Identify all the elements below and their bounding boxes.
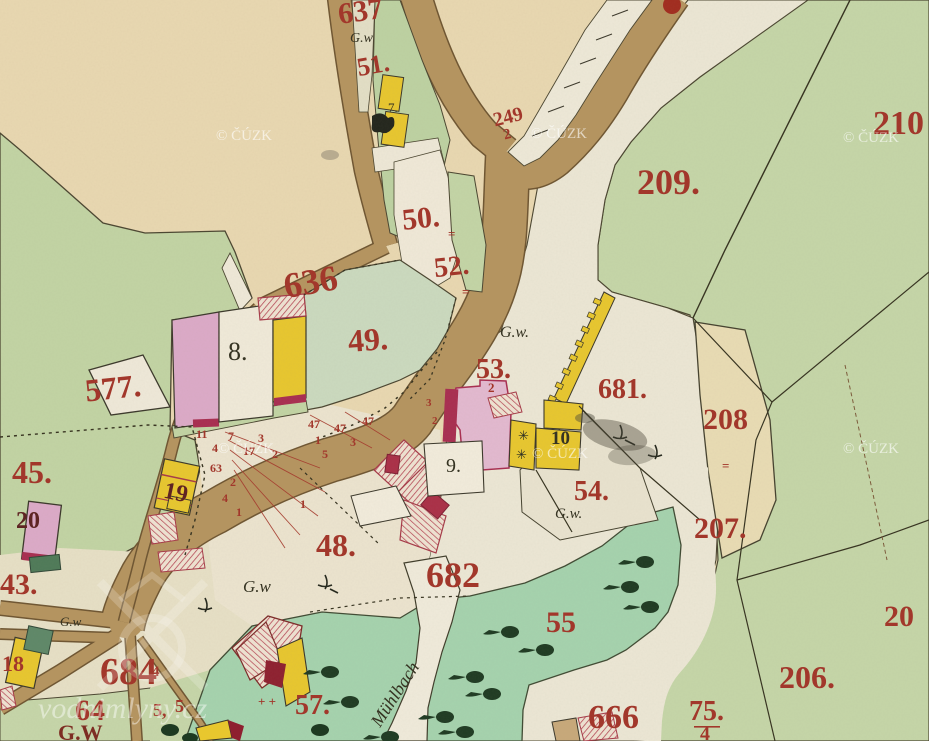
svg-text:2: 2: [488, 380, 495, 395]
svg-text:=: =: [462, 284, 469, 299]
svg-text:✳: ✳: [518, 428, 529, 443]
svg-text:© ČÚZK: © ČÚZK: [843, 129, 899, 146]
svg-text:© ČÚZK: © ČÚZK: [532, 445, 588, 462]
svg-text:© ČÚZK: © ČÚZK: [531, 125, 587, 142]
svg-text:vodnimlyny.cz: vodnimlyny.cz: [38, 692, 207, 725]
svg-text:© ČÚZK: © ČÚZK: [843, 440, 899, 457]
svg-text:© ČÚZK: © ČÚZK: [216, 127, 272, 144]
svg-text:=: =: [722, 458, 729, 473]
svg-text:✳: ✳: [516, 447, 527, 462]
svg-text:=: =: [448, 226, 455, 241]
svg-text:© ČÚZK: © ČÚZK: [218, 440, 274, 457]
